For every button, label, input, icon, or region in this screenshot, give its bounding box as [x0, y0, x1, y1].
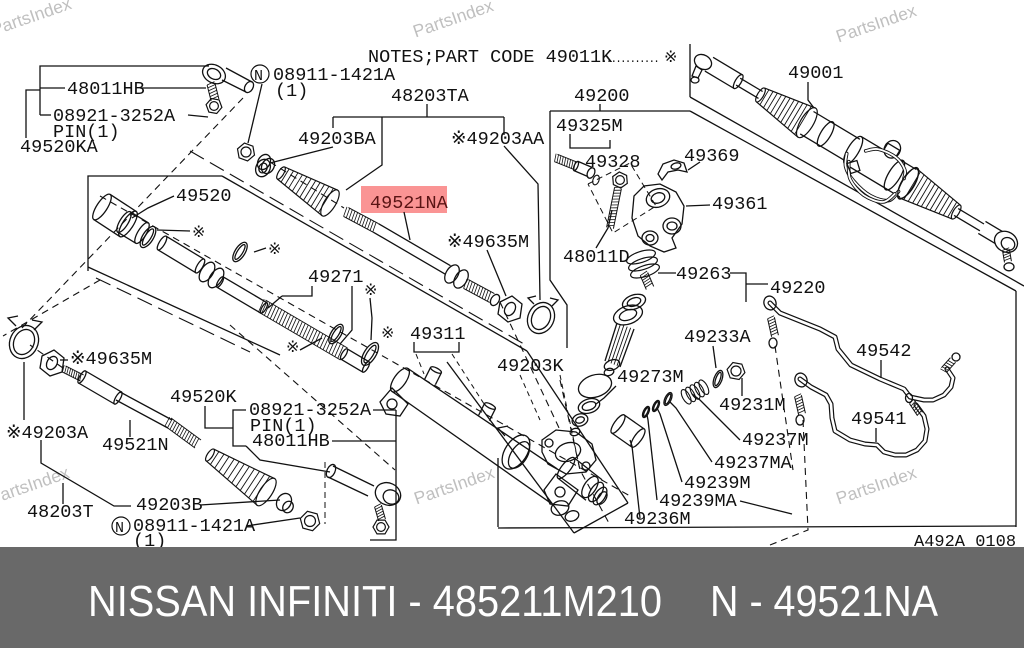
svg-text:49271: 49271: [308, 267, 364, 288]
svg-text:※: ※: [286, 339, 299, 357]
svg-text:※: ※: [664, 49, 677, 67]
svg-text:49520K: 49520K: [170, 387, 238, 408]
svg-text:48011HB: 48011HB: [67, 79, 145, 100]
svg-text:49521NA: 49521NA: [370, 193, 449, 214]
svg-text:N - 49521NA: N - 49521NA: [710, 577, 939, 626]
svg-text:49231M: 49231M: [719, 395, 786, 416]
svg-text:※49203A: ※49203A: [6, 423, 89, 444]
svg-text:NISSAN INFINITI - 485211M210: NISSAN INFINITI - 485211M210: [88, 577, 662, 626]
svg-text:49203B: 49203B: [136, 495, 203, 516]
svg-text:49328: 49328: [585, 152, 641, 173]
svg-text:※: ※: [381, 325, 394, 343]
svg-text:49273M: 49273M: [617, 367, 684, 388]
svg-text:※49635M: ※49635M: [70, 349, 152, 370]
svg-text:※: ※: [364, 282, 377, 300]
svg-text:49203K: 49203K: [497, 356, 565, 377]
svg-text:49001: 49001: [788, 63, 844, 84]
svg-text:48203TA: 48203TA: [391, 86, 470, 107]
svg-text:※49203AA: ※49203AA: [451, 129, 545, 150]
svg-text:49520: 49520: [176, 186, 232, 207]
svg-text:49311: 49311: [410, 324, 466, 345]
svg-text:49521N: 49521N: [102, 435, 169, 456]
svg-text:49237M: 49237M: [742, 430, 809, 451]
svg-text:49542: 49542: [856, 341, 912, 362]
svg-text:48011D: 48011D: [563, 247, 630, 268]
svg-text:49236M: 49236M: [624, 509, 691, 530]
svg-text:49220: 49220: [770, 278, 826, 299]
svg-text:※49635M: ※49635M: [447, 232, 529, 253]
svg-text:(1): (1): [275, 81, 308, 102]
svg-text:49325M: 49325M: [556, 116, 623, 137]
svg-text:49361: 49361: [712, 194, 768, 215]
svg-text:49520KA: 49520KA: [20, 137, 99, 158]
svg-text:N: N: [254, 68, 263, 85]
svg-text:48203T: 48203T: [27, 502, 94, 523]
svg-text:49203BA: 49203BA: [298, 129, 377, 150]
svg-text:49369: 49369: [684, 146, 740, 167]
svg-text:............: ............: [601, 54, 658, 66]
svg-text:49237MA: 49237MA: [714, 453, 793, 474]
svg-text:49233A: 49233A: [684, 327, 752, 348]
svg-text:49200: 49200: [574, 86, 630, 107]
svg-text:NOTES;PART CODE 49011K: NOTES;PART CODE 49011K: [368, 47, 613, 68]
svg-text:N: N: [115, 520, 124, 537]
svg-text:49541: 49541: [851, 409, 907, 430]
svg-text:48011HB: 48011HB: [252, 431, 330, 452]
svg-text:49263: 49263: [676, 264, 732, 285]
svg-text:※: ※: [268, 241, 281, 259]
svg-text:※: ※: [192, 224, 205, 242]
